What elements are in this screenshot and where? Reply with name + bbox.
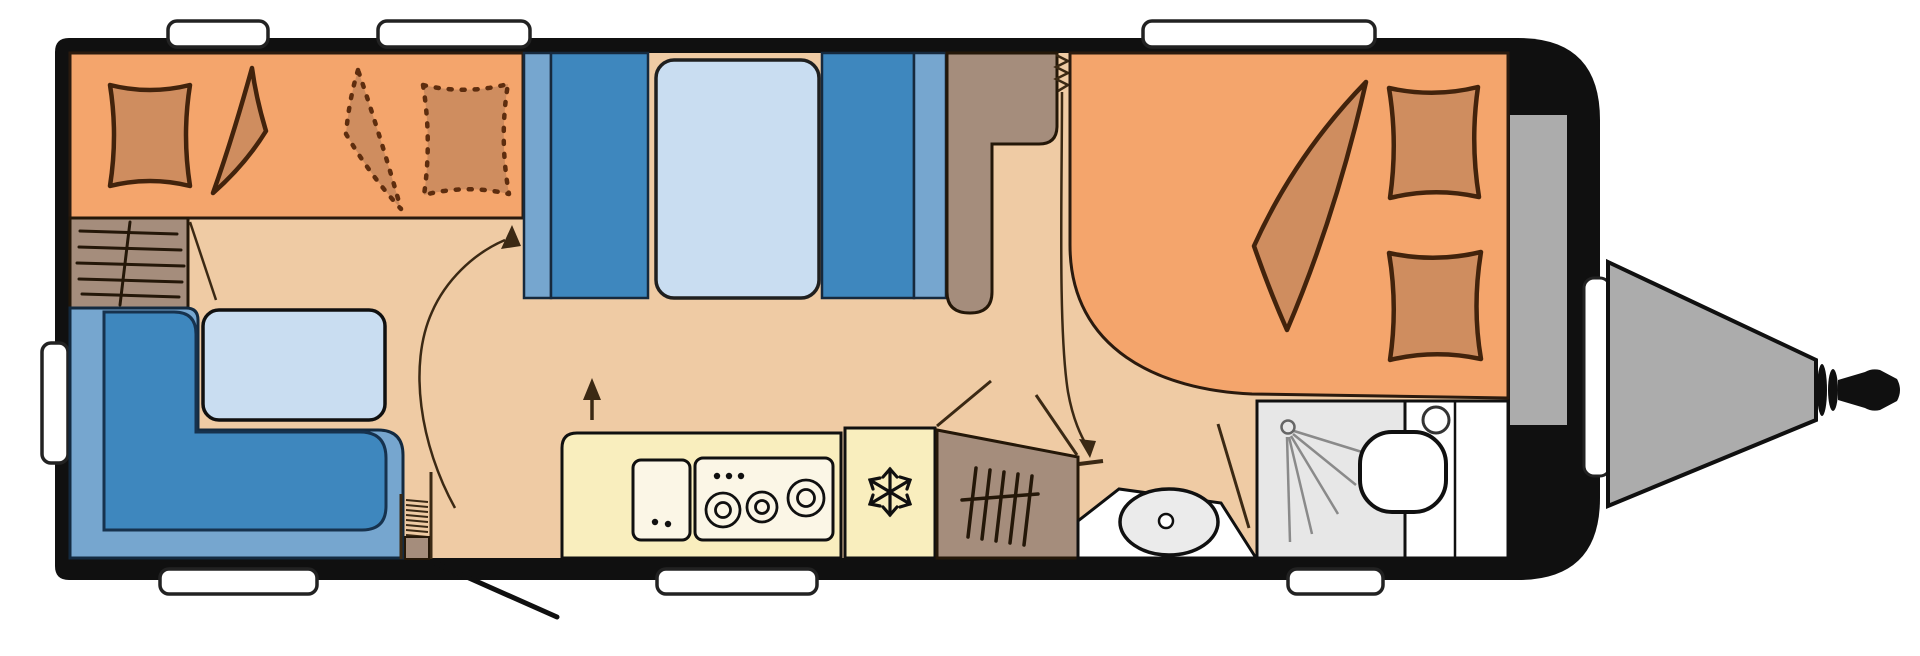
bunk-strip-right xyxy=(914,53,946,298)
floorplan-canvas xyxy=(0,0,1920,656)
cistern-icon xyxy=(1423,407,1449,433)
window-left-side xyxy=(42,343,68,463)
bunk-panel-left xyxy=(551,53,648,298)
hitch-coupling-icon xyxy=(1817,364,1900,416)
kitchen-block xyxy=(562,433,841,558)
dinette xyxy=(70,308,403,558)
drawbar xyxy=(1608,262,1816,506)
pillow-icon xyxy=(1389,252,1481,360)
toilet-bowl-icon xyxy=(1360,432,1446,512)
window-top-middle xyxy=(378,21,530,47)
stove-icon xyxy=(695,458,833,540)
window-top-right xyxy=(1143,21,1375,47)
bunk-strip-left xyxy=(524,53,551,298)
window-bottom-right xyxy=(1288,569,1383,594)
window-top-left xyxy=(168,21,268,47)
window-bottom-left xyxy=(160,569,317,594)
window-bottom-middle xyxy=(657,569,817,594)
pillow-icon xyxy=(110,85,190,186)
gas-locker-strip xyxy=(1510,115,1567,425)
sink-icon xyxy=(633,460,690,540)
fridge xyxy=(845,428,935,558)
dashed-pillow-icon xyxy=(423,84,509,195)
pillow-icon xyxy=(1389,87,1479,198)
right-bed xyxy=(1070,53,1508,398)
door-sill xyxy=(405,537,429,559)
dinette-table xyxy=(203,310,385,420)
basin-drain-icon xyxy=(1159,514,1173,528)
bunk-section xyxy=(524,53,946,298)
caravan-floorplan xyxy=(0,0,1920,656)
bunk-panel-right xyxy=(822,53,914,298)
left-bed xyxy=(70,53,523,218)
shower-head-icon xyxy=(1282,421,1295,434)
bunk-mattress xyxy=(656,60,819,298)
